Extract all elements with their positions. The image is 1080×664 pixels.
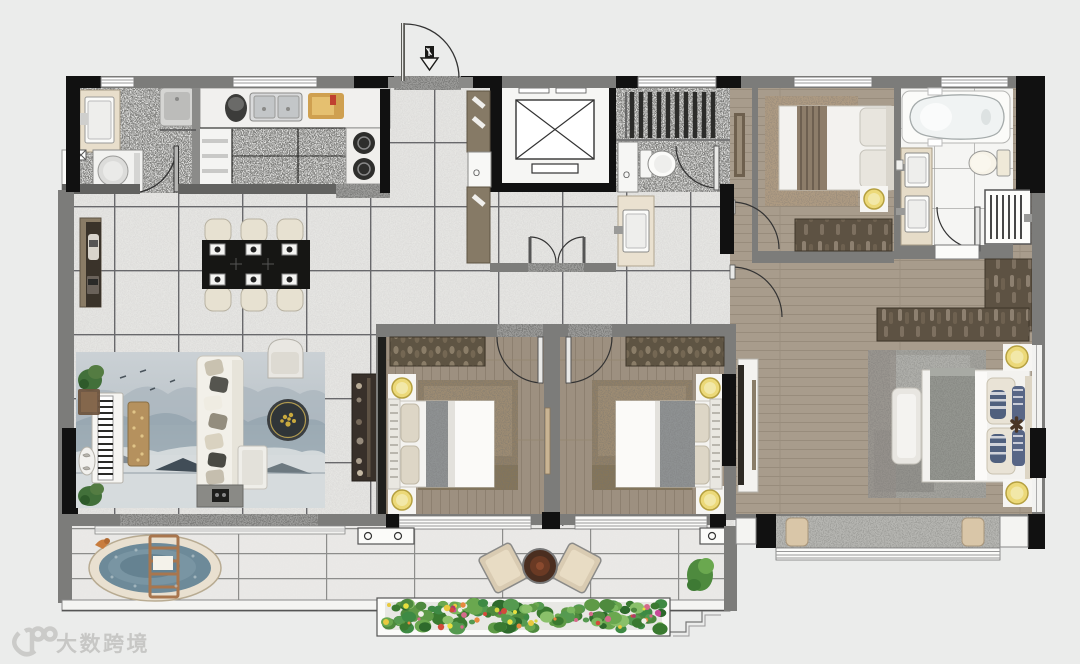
svg-text:大数跨境: 大数跨境 bbox=[56, 632, 150, 656]
svg-text:O: O bbox=[473, 168, 480, 178]
svg-text:O: O bbox=[623, 170, 630, 180]
